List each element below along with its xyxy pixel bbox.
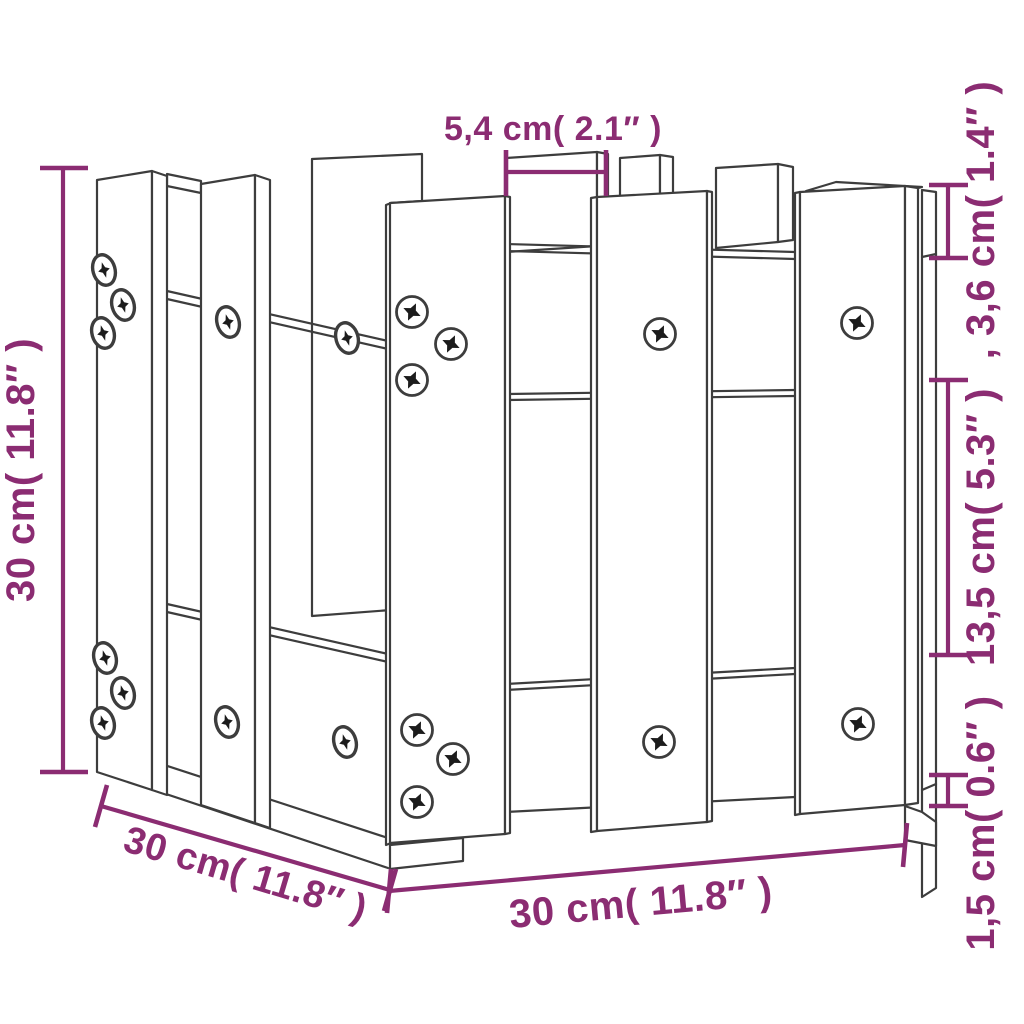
screw-icon	[330, 724, 360, 760]
screw-icon	[402, 787, 433, 818]
dimension-right-middle: 13,5 cm( 5.3″ )	[929, 380, 1003, 666]
dim-label-bottom-width: 30 cm( 11.8″ )	[507, 869, 774, 937]
dimension-bottom-width: 30 cm( 11.8″ )	[387, 823, 907, 937]
screw-icon	[438, 744, 469, 775]
dimension-right-bottom: 1,5 cm( 0.6″ )	[929, 695, 1003, 950]
back-picket-side	[778, 164, 793, 242]
dim-label-right-middle: 13,5 cm( 5.3″ )	[959, 388, 1003, 666]
screw-icon	[402, 715, 433, 746]
back-picket-side	[660, 155, 673, 197]
left-picket-2-side	[255, 175, 270, 828]
pickets	[97, 171, 918, 869]
back-corner-post-right	[922, 190, 936, 897]
back-picket-face	[620, 155, 660, 199]
screw-icon	[397, 297, 428, 328]
front-picket-1-side	[505, 196, 510, 834]
screw-icon	[843, 709, 874, 740]
dim-label-top-width: 5,4 cm( 2.1″ )	[444, 110, 662, 148]
left-picket-1-side	[152, 171, 167, 795]
screw-icon	[644, 727, 675, 758]
back-rail-wedge-left	[167, 174, 201, 193]
screw-icon	[436, 329, 467, 360]
dim-label-left-height: 30 cm( 11.8″ )	[0, 338, 43, 602]
screw-icon	[645, 319, 676, 350]
back-picket-face	[506, 152, 597, 252]
dimension-left-height: 30 cm( 11.8″ )	[0, 168, 88, 772]
screw-icon	[842, 308, 873, 339]
dim-label-right-bottom: 1,5 cm( 0.6″ )	[959, 695, 1003, 950]
front-picket-3-side	[905, 186, 918, 805]
diagram-canvas: 5,4 cm( 2.1″ ) 30 cm( 11.8″ ) , 3,6 cm( …	[0, 0, 1024, 1024]
planter-dimension-diagram: 5,4 cm( 2.1″ ) 30 cm( 11.8″ ) , 3,6 cm( …	[0, 0, 1024, 1024]
dimension-right-top: , 3,6 cm( 1.4″ )	[929, 81, 1003, 359]
front-picket-2-side	[707, 191, 712, 822]
dim-label-right-top: , 3,6 cm( 1.4″ )	[959, 81, 1003, 359]
back-picket-face	[716, 164, 778, 248]
screw-icon	[397, 365, 428, 396]
